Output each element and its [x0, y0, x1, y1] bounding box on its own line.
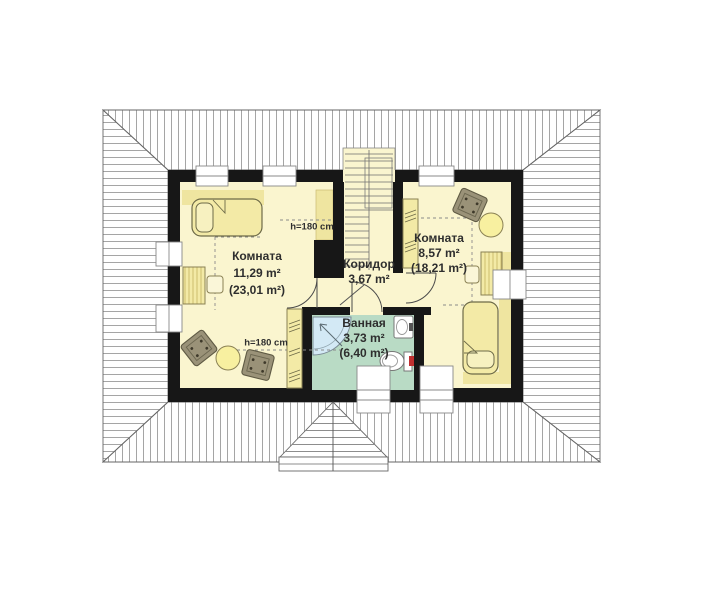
room-area: 8,57 m²: [411, 246, 467, 261]
round-table-icon: [479, 213, 503, 237]
window: [263, 166, 296, 186]
room-area: 3,73 m²: [339, 331, 388, 346]
bed-icon: [192, 199, 262, 236]
room-name: Комната: [229, 248, 285, 265]
window: [156, 305, 182, 332]
chimney: [314, 240, 344, 278]
roof-slope-left: [103, 110, 168, 462]
window: [357, 366, 390, 413]
sink-icon: [394, 316, 413, 338]
window: [420, 366, 453, 413]
room-name: Ванная: [339, 316, 388, 331]
room-total-area: (23,01 m²): [229, 282, 285, 299]
room-label-corridor: Коридор 3,67 m²: [343, 257, 395, 287]
window: [419, 166, 454, 186]
room-area: 3,67 m²: [343, 272, 395, 287]
room-area: 11,29 m²: [229, 265, 285, 282]
room-label-right: Комната 8,57 m² (18,21 m²): [411, 231, 467, 276]
bed-icon: [463, 302, 498, 374]
chair-icon: [465, 266, 479, 283]
room-name: Коридор: [343, 257, 395, 272]
height-marker-bottom: h=180 cm: [244, 338, 288, 349]
floor-plan-canvas: Комната 11,29 m² (23,01 m²) Коридор 3,67…: [0, 0, 701, 599]
room-total-area: (6,40 m²): [339, 346, 388, 361]
room-label-left: Комната 11,29 m² (23,01 m²): [229, 248, 285, 299]
window: [493, 270, 526, 299]
room-total-area: (18,21 m²): [411, 261, 467, 276]
room-label-bathroom: Ванная 3,73 m² (6,40 m²): [339, 316, 388, 361]
chair-icon: [207, 276, 223, 293]
window: [196, 166, 228, 186]
roof-slope-right: [523, 110, 600, 462]
room-name: Комната: [411, 231, 467, 246]
round-table-icon: [216, 346, 240, 370]
window: [156, 242, 182, 266]
height-marker-top: h=180 cm: [290, 222, 334, 233]
wardrobe-icon: [287, 309, 302, 388]
floor-plan-drawing: [0, 0, 701, 599]
